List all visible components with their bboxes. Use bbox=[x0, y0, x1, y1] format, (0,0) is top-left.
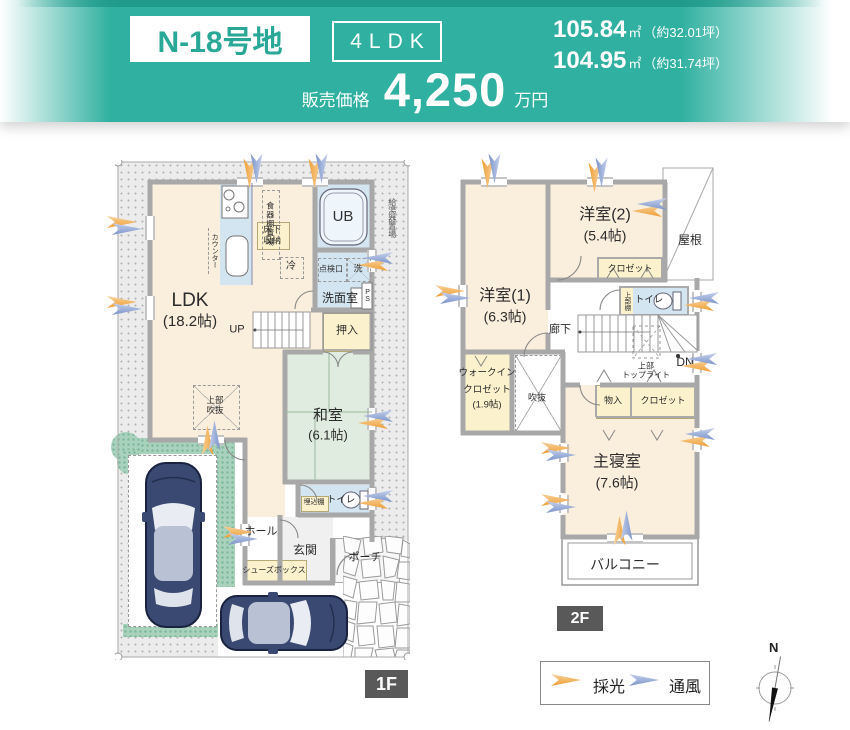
area1-unit: ㎡ bbox=[628, 25, 641, 42]
label-inspection: 点検口 bbox=[319, 264, 343, 273]
label-closet-room2: クロゼット bbox=[607, 264, 652, 275]
label-dn: DN bbox=[676, 355, 693, 369]
area1-tsubo: （約32.01坪） bbox=[643, 25, 728, 42]
label-roof: 屋根 bbox=[678, 233, 702, 247]
area2-tsubo: （約31.74坪） bbox=[643, 56, 728, 73]
room-label-yoshitsu2-size: (5.4帖) bbox=[584, 228, 627, 245]
lot-number-box: N-18号地 bbox=[130, 16, 310, 62]
label-storage: 物入 bbox=[604, 396, 622, 407]
label-void-above-1: 上部 bbox=[206, 395, 223, 405]
room-label-hall: ホール bbox=[245, 526, 278, 539]
price-value: 4,250 bbox=[384, 62, 507, 117]
car-icon bbox=[218, 592, 350, 654]
label-underfloor-storage: 床下収納 bbox=[259, 224, 285, 245]
price-row: 販売価格 4,250 万円 bbox=[280, 62, 570, 117]
label-corridor: 廊下 bbox=[549, 324, 571, 337]
room-label-porch: ポーチ bbox=[349, 552, 382, 565]
plan-type-badge: 4LDK bbox=[332, 21, 442, 62]
area2-unit: ㎡ bbox=[628, 56, 641, 73]
header-band: N-18号地 4LDK 販売価格 4,250 万円 105.84 ㎡ （約32.… bbox=[0, 0, 850, 122]
room-label-master: 主寝室 bbox=[593, 454, 641, 473]
label-shoe-box: シューズボックス bbox=[242, 565, 305, 574]
room-label-ldk-size: (18.2帖) bbox=[163, 313, 217, 331]
compass-north-label: N bbox=[769, 640, 778, 655]
car-icon bbox=[142, 460, 205, 630]
label-oshiire: 押入 bbox=[336, 325, 358, 338]
label-closet-master: クロゼット bbox=[640, 396, 685, 407]
page: N-18号地 4LDK 販売価格 4,250 万円 105.84 ㎡ （約32.… bbox=[0, 0, 850, 730]
price-unit: 万円 bbox=[514, 86, 548, 111]
room-label-washroom: 洗面室 bbox=[322, 291, 358, 305]
room-label-yoshitsu2: 洋室(2) bbox=[579, 207, 631, 226]
floor-badge-2f: 2F bbox=[557, 606, 603, 631]
compass-icon: N bbox=[745, 638, 805, 730]
floor-badge-1f: 1F bbox=[365, 670, 408, 698]
label-wic-3: (1.9帖) bbox=[472, 399, 501, 410]
area1-value: 105.84 bbox=[553, 14, 626, 45]
area-line-1: 105.84 ㎡ （約32.01坪） bbox=[553, 14, 728, 45]
room-label-entrance: 玄関 bbox=[293, 543, 317, 557]
room-label-washitsu-size: (6.1帖) bbox=[308, 427, 348, 442]
label-washer: 洗 bbox=[353, 264, 362, 275]
label-builtin-shelf: 埋込棚 bbox=[304, 499, 325, 507]
legend-daylight-label: 採光 bbox=[593, 673, 625, 697]
room-label-toilet-2f: トイレ bbox=[635, 294, 664, 305]
floorplan-2f: 洋室(1) (6.3帖) 洋室(2) (5.4帖) 屋根 クロゼット 上部棚 ト… bbox=[445, 160, 720, 660]
label-void-2f: 吹抜 bbox=[528, 393, 546, 404]
floorplan-1f: LDK (18.2帖) 和室 (6.1帖) 食器棚置場 床下収納 カウンター 冷… bbox=[115, 160, 410, 660]
daylight-arrow-icon bbox=[551, 674, 587, 693]
room-label-toilet-1f: トイレ bbox=[327, 494, 356, 505]
room-label-washitsu: 和室 bbox=[313, 407, 343, 425]
area2-value: 104.95 bbox=[553, 45, 626, 76]
label-wic-1: ウォークイン bbox=[458, 367, 515, 378]
room-label-yoshitsu1-size: (6.3帖) bbox=[484, 309, 527, 326]
label-fridge: 冷 bbox=[286, 261, 296, 273]
label-upper-shelf: 上部棚 bbox=[622, 291, 630, 311]
label-toplight-2: トップライト bbox=[622, 370, 670, 379]
ventilation-arrow-icon bbox=[629, 674, 665, 693]
room-label-master-size: (7.6帖) bbox=[596, 475, 639, 492]
room-label-yoshitsu1: 洋室(1) bbox=[479, 288, 531, 307]
label-counter: カウンター bbox=[210, 234, 218, 269]
area-block: 105.84 ㎡ （約32.01坪） 104.95 ㎡ （約31.74坪） bbox=[553, 14, 728, 76]
room-label-ub: UB bbox=[333, 208, 354, 226]
label-wic-2: クロゼット bbox=[463, 384, 511, 395]
label-up: UP bbox=[229, 324, 244, 337]
legend-box: 採光 通風 bbox=[540, 661, 710, 705]
label-water-heater: 給湯器置場 bbox=[387, 198, 396, 238]
legend-ventilation-label: 通風 bbox=[669, 673, 701, 697]
header-top-stripe bbox=[0, 0, 850, 7]
label-void-above-2: 吹抜 bbox=[206, 405, 223, 415]
label-balcony: バルコニー bbox=[590, 557, 660, 574]
room-label-ldk: LDK bbox=[172, 290, 209, 312]
price-label: 販売価格 bbox=[302, 86, 370, 111]
lot-number: N-18号地 bbox=[157, 17, 282, 61]
area-line-2: 104.95 ㎡ （約31.74坪） bbox=[553, 45, 728, 76]
plan-type: 4LDK bbox=[343, 30, 431, 54]
label-ps: PS bbox=[363, 289, 371, 303]
